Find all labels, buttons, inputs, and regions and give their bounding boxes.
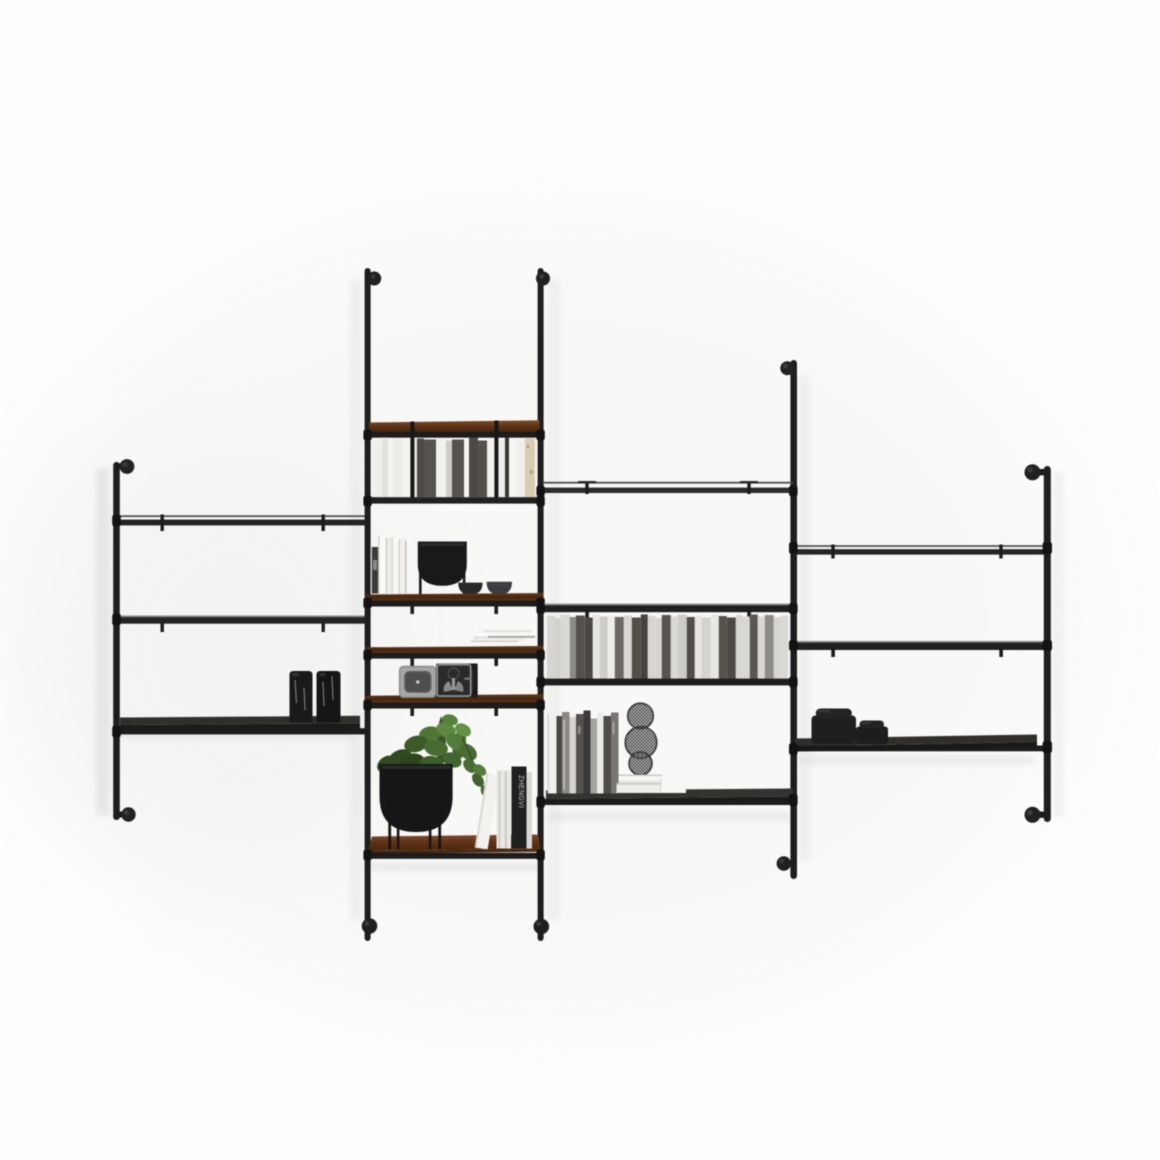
svg-text:ZHENGVI: ZHENGVI xyxy=(517,775,524,808)
